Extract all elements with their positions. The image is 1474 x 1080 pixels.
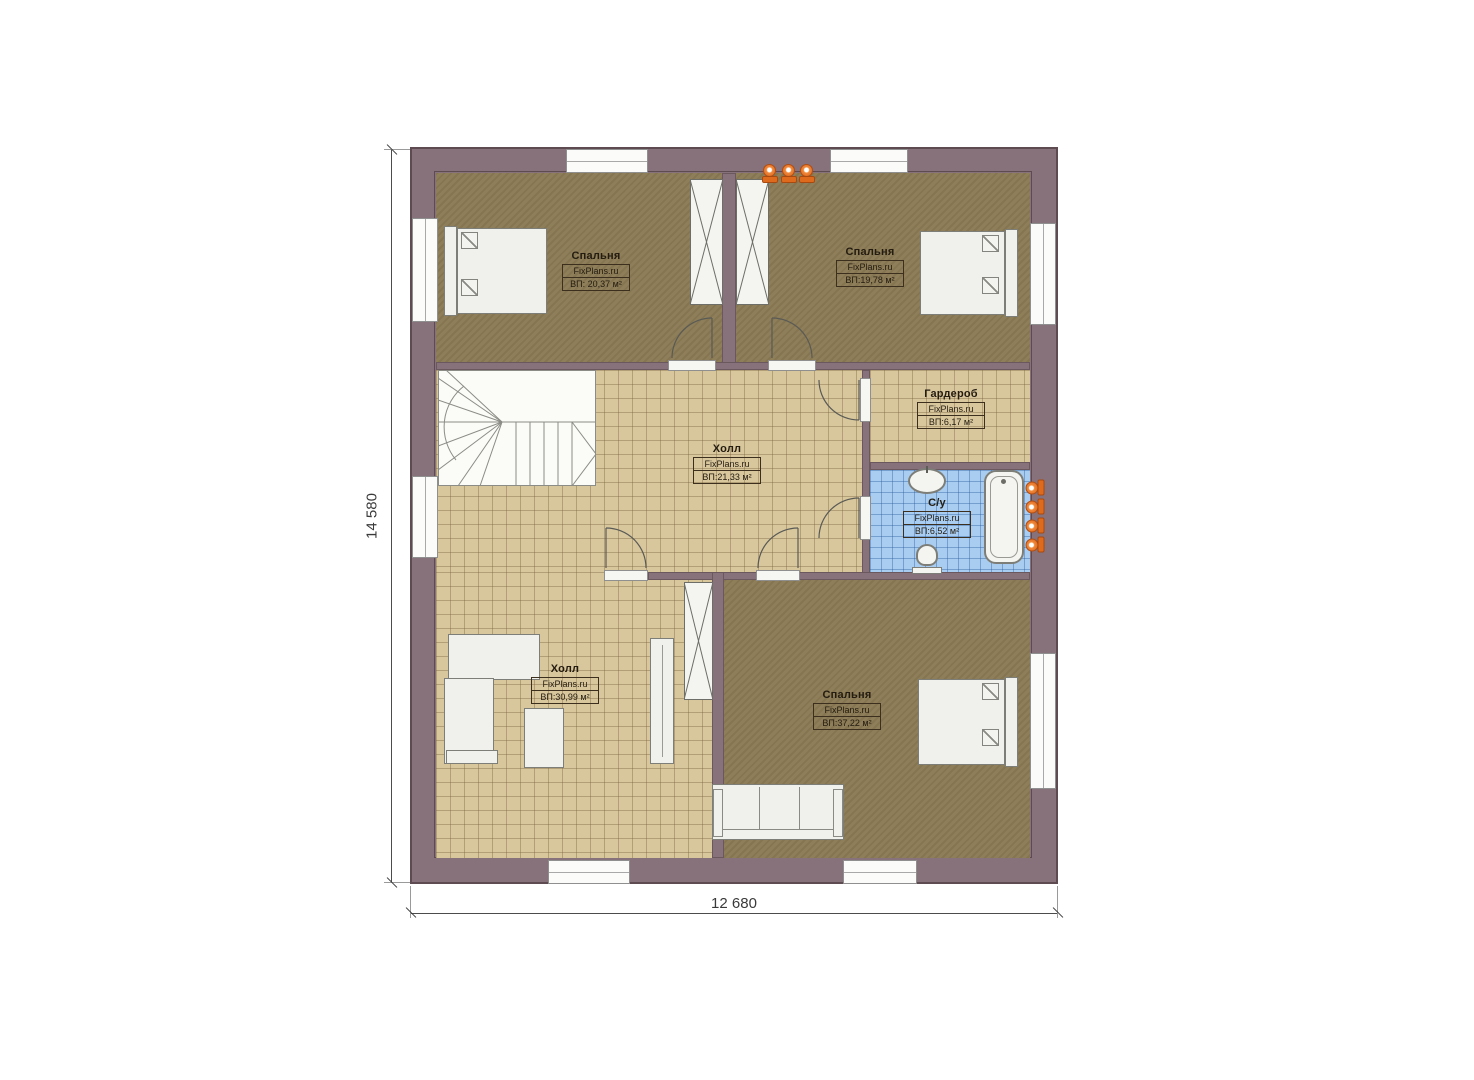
- door-leaf: [668, 360, 716, 371]
- pillow: [982, 235, 999, 252]
- room-label: Гардероб FixPlans.ru ВП:6,17 м²: [917, 388, 985, 429]
- window-right-bedroom-top: [1030, 223, 1056, 325]
- room-area: ВП:37,22 м²: [814, 717, 880, 729]
- pillow: [982, 683, 999, 700]
- bathtub-faucet: [1001, 479, 1006, 484]
- bed-headboard: [1005, 229, 1018, 317]
- dimension-extension: [384, 149, 410, 150]
- room-label: Холл FixPlans.ru ВП:30,99 м²: [531, 663, 599, 704]
- brand-watermark: FixPlans.ru: [918, 403, 984, 416]
- window-top-left: [566, 149, 648, 173]
- dimension-extension: [384, 882, 410, 883]
- window-left-bedroom: [412, 218, 438, 322]
- door-leaf: [860, 378, 871, 422]
- window-top-right: [830, 149, 908, 173]
- window-left-hall: [412, 476, 438, 558]
- door-arc: [817, 496, 861, 540]
- corner-sofa: [448, 634, 540, 680]
- closet-x-icon: [684, 582, 713, 700]
- room-info-box: FixPlans.ru ВП:19,78 м²: [836, 260, 904, 287]
- door-leaf: [860, 496, 871, 540]
- wall-central-top: [722, 173, 736, 364]
- wall-wardrobe-bath: [870, 462, 1030, 470]
- brand-watermark: FixPlans.ru: [532, 678, 598, 691]
- room-info-box: FixPlans.ru ВП: 20,37 м²: [562, 264, 630, 291]
- sconce-icon: [799, 164, 813, 181]
- room-name: Спальня: [836, 246, 904, 258]
- door-arc: [604, 526, 648, 570]
- room-area: ВП:6,52 м²: [904, 525, 970, 537]
- toilet-tank: [912, 567, 942, 574]
- sofa-arm: [833, 789, 843, 837]
- bathtub: [984, 470, 1024, 564]
- closet-x-icon: [736, 179, 769, 305]
- sofa-arm: [713, 789, 723, 837]
- sink: [908, 468, 946, 494]
- sconce-icon: [781, 164, 795, 181]
- tv-stand: [650, 638, 674, 764]
- bathtub-inner: [990, 476, 1018, 558]
- sconce-icon: [1026, 539, 1043, 553]
- sconce-icon: [1026, 520, 1043, 534]
- sconce-icon: [762, 164, 776, 181]
- floor-plan-canvas: Спальня FixPlans.ru ВП: 20,37 м² Спальня…: [0, 0, 1474, 1080]
- room-area: ВП:6,17 м²: [918, 416, 984, 428]
- window-bottom-bedroom: [843, 860, 917, 884]
- room-area: ВП:21,33 м²: [694, 471, 760, 483]
- coffee-table: [524, 708, 564, 768]
- bed-headboard: [444, 226, 457, 316]
- tv-stand-line: [662, 645, 663, 757]
- room-name: Холл: [693, 443, 761, 455]
- dimension-height-label: 14 580: [364, 487, 381, 545]
- window-right-bedroom-bottom: [1030, 653, 1056, 789]
- dimension-width-label: 12 680: [705, 895, 763, 912]
- staircase: [438, 370, 596, 486]
- room-name: Холл: [531, 663, 599, 675]
- toilet: [912, 544, 942, 574]
- door-leaf: [756, 570, 800, 581]
- brand-watermark: FixPlans.ru: [837, 261, 903, 274]
- door-arc: [770, 316, 814, 360]
- wall-bedrooms-hall: [436, 362, 1030, 370]
- room-info-box: FixPlans.ru ВП:37,22 м²: [813, 703, 881, 730]
- brand-watermark: FixPlans.ru: [904, 512, 970, 525]
- sofa-cushion-divider: [759, 787, 760, 829]
- room-area: ВП:30,99 м²: [532, 691, 598, 703]
- room-name: Гардероб: [917, 388, 985, 400]
- room-label: Спальня FixPlans.ru ВП: 20,37 м²: [562, 250, 630, 291]
- brand-watermark: FixPlans.ru: [694, 458, 760, 471]
- door-leaf: [768, 360, 816, 371]
- wall-hall-bedroom-bottom: [648, 572, 1030, 580]
- door-leaf: [604, 570, 648, 581]
- room-name: Спальня: [813, 689, 881, 701]
- sink-tap: [926, 466, 928, 473]
- corner-sofa: [446, 750, 498, 764]
- sofa-cushion-divider: [799, 787, 800, 829]
- room-area: ВП:19,78 м²: [837, 274, 903, 286]
- toilet-bowl: [916, 544, 938, 566]
- room-label: Спальня FixPlans.ru ВП:19,78 м²: [836, 246, 904, 287]
- room-info-box: FixPlans.ru ВП:21,33 м²: [693, 457, 761, 484]
- dimension-line-horizontal: [410, 913, 1058, 914]
- sofa-front-edge: [723, 829, 833, 830]
- sconce-icon: [1026, 482, 1043, 496]
- window-bottom-hall: [548, 860, 630, 884]
- room-label: Спальня FixPlans.ru ВП:37,22 м²: [813, 689, 881, 730]
- closet-x-icon: [690, 179, 723, 305]
- room-area: ВП: 20,37 м²: [563, 278, 629, 290]
- door-arc: [756, 526, 800, 570]
- room-info-box: FixPlans.ru ВП:6,17 м²: [917, 402, 985, 429]
- bed-headboard: [1005, 677, 1018, 767]
- door-arc: [670, 316, 714, 360]
- room-info-box: FixPlans.ru ВП:30,99 м²: [531, 677, 599, 704]
- room-label: Холл FixPlans.ru ВП:21,33 м²: [693, 443, 761, 484]
- sconce-icon: [1026, 501, 1043, 515]
- room-info-box: FixPlans.ru ВП:6,52 м²: [903, 511, 971, 538]
- pillow: [982, 277, 999, 294]
- room-label: С/у FixPlans.ru ВП:6,52 м²: [903, 497, 971, 538]
- pillow: [461, 232, 478, 249]
- door-arc: [817, 378, 861, 422]
- room-name: С/у: [903, 497, 971, 509]
- brand-watermark: FixPlans.ru: [563, 265, 629, 278]
- room-name: Спальня: [562, 250, 630, 262]
- pillow: [982, 729, 999, 746]
- pillow: [461, 279, 478, 296]
- dimension-line-vertical: [391, 150, 392, 883]
- brand-watermark: FixPlans.ru: [814, 704, 880, 717]
- sofa: [712, 784, 844, 840]
